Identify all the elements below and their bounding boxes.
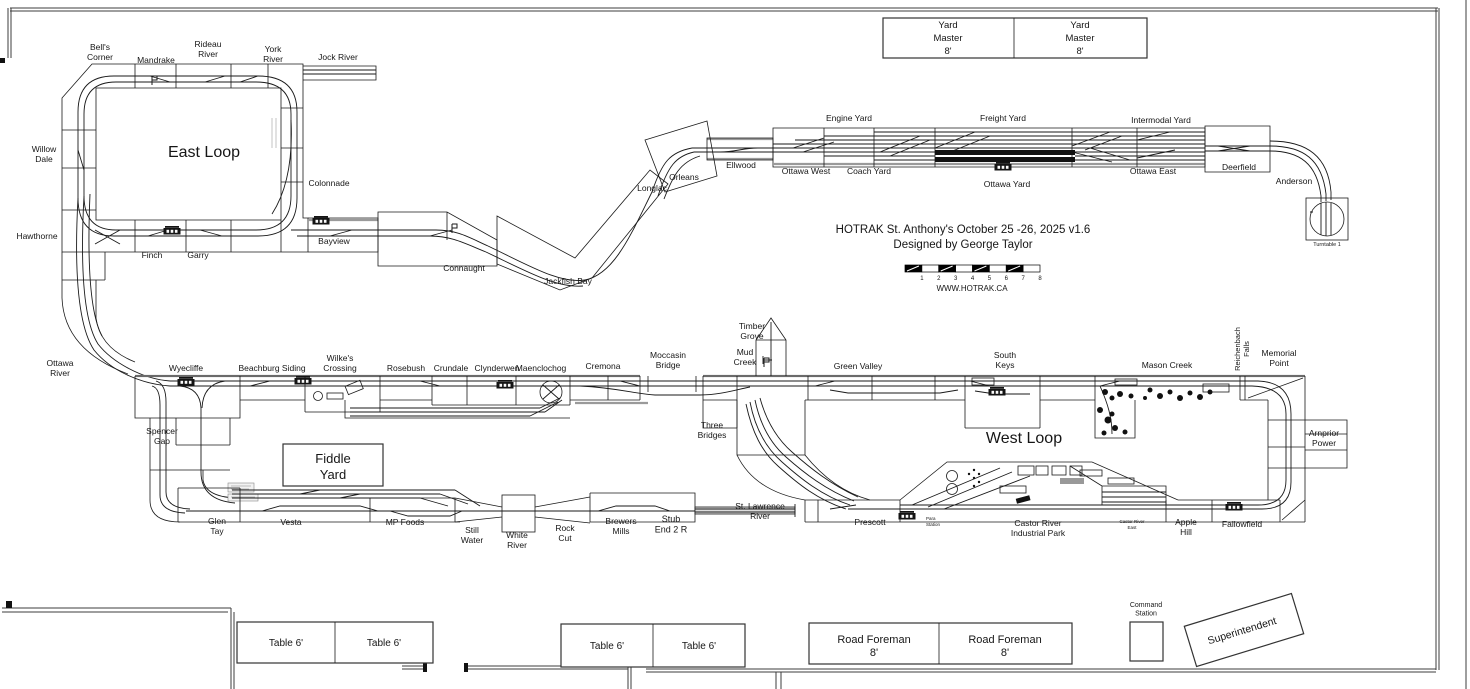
station-label: StillWater [461, 525, 484, 545]
station-label: WhiteRiver [506, 530, 528, 550]
station-label: RockCut [555, 523, 575, 543]
scale-number: 4 [971, 276, 975, 282]
west-loop-area [737, 398, 1305, 522]
yard-master-box [883, 18, 1147, 58]
station-building-icon [989, 387, 1006, 396]
plan-designer: Designed by George Taylor [893, 239, 1032, 251]
station-label: ThreeBridges [698, 420, 727, 440]
station-label: WillowDale [32, 144, 57, 164]
east-loop-label: East Loop [168, 144, 240, 161]
station-building-icon [178, 377, 195, 386]
station-label: ArnpriorPower [1309, 428, 1339, 448]
station-label: Prescott [854, 517, 886, 527]
station-label: SouthKeys [994, 350, 1016, 370]
command-station-box [1130, 622, 1163, 661]
station-label: Connaught [443, 263, 485, 273]
station-label: Turntable 1 [1313, 242, 1341, 248]
station-label: Maenclochog [516, 363, 567, 373]
station-label: Jackfish Bay [544, 276, 592, 286]
station-label: Intermodal Yard [1131, 115, 1191, 125]
track-plan-page: 12345678 Bell'sCornerMandrakeRideauRiver… [0, 0, 1470, 689]
scale-bar-cell [1023, 265, 1040, 272]
station-label: Ottawa West [782, 166, 831, 176]
station-label: Longlac [637, 183, 668, 193]
station-building-icon [995, 162, 1012, 171]
station-label: BrewersMills [605, 516, 636, 536]
station-label: ParaStation [926, 516, 941, 527]
ottawa-yards [773, 126, 1348, 240]
station-label: Ottawa Yard [984, 179, 1031, 189]
scale-number: 2 [937, 276, 941, 282]
station-label: SpencerGap [146, 426, 178, 446]
station-label: Finch [142, 250, 163, 260]
fiddle-yard-label: FiddleYard [315, 451, 350, 482]
scale-number: 5 [988, 276, 992, 282]
scale-bar: 12345678 [905, 265, 1042, 282]
table-label: Table 6' [367, 638, 401, 649]
station-building-icon [899, 511, 916, 520]
station-label: MemorialPoint [1262, 348, 1297, 368]
north-mainline [291, 121, 773, 290]
labels-layer: Bell'sCornerMandrakeRideauRiverYorkRiver… [16, 20, 1340, 659]
station-label: Engine Yard [826, 113, 872, 123]
station-label: AppleHill [1175, 517, 1197, 537]
station-label: ReichenbachFalls [1233, 327, 1251, 371]
station-label: Fallowfield [1222, 519, 1262, 529]
station-label: Hawthorne [16, 231, 57, 241]
west-loop-label: West Loop [986, 430, 1062, 447]
station-building-icon [295, 376, 312, 385]
station-label: Mandrake [137, 55, 175, 65]
station-label: RideauRiver [195, 39, 222, 59]
station-label: Clynderwen [475, 363, 520, 373]
scale-number: 3 [954, 276, 958, 282]
turntable-1 [1306, 198, 1348, 240]
station-label: Orleans [669, 172, 699, 182]
station-label: Ottawa East [1130, 166, 1177, 176]
station-label: Wilke'sCrossing [323, 353, 357, 373]
station-label: Bell'sCorner [87, 42, 113, 62]
plan-title: HOTRAK St. Anthony's October 25 -26, 202… [836, 224, 1091, 236]
station-label: Rosebush [387, 363, 426, 373]
station-label: Bayview [318, 236, 351, 246]
station-label: MP Foods [386, 517, 425, 527]
station-building-icon [313, 216, 330, 225]
station-label: Wyecliffe [169, 363, 204, 373]
scale-bar-cell [922, 265, 939, 272]
scale-number: 6 [1005, 276, 1009, 282]
scale-number: 7 [1021, 276, 1025, 282]
station-label: Castor RiverIndustrial Park [1011, 518, 1066, 538]
station-label: Garry [187, 250, 209, 260]
station-label: TimberGrove [739, 321, 765, 341]
station-label: Crundale [434, 363, 469, 373]
station-label: Castor RiverEast [1119, 519, 1145, 530]
station-label: YorkRiver [263, 44, 283, 64]
table-label: Table 6' [269, 638, 303, 649]
mason-creek-scenery [1097, 379, 1229, 436]
east-loop-trackage [77, 76, 297, 386]
table-label: Table 6' [682, 641, 716, 652]
station-building-icon [164, 226, 181, 235]
station-label: Deerfield [1222, 162, 1256, 172]
station-label: Mason Creek [1142, 360, 1193, 370]
station-label: Beachburg Siding [238, 363, 305, 373]
station-label: MudCreek [734, 347, 757, 367]
station-label: GlenTay [208, 516, 226, 536]
station-building-icon [1226, 502, 1243, 511]
station-label: OttawaRiver [47, 358, 74, 378]
station-building-icon [497, 380, 514, 389]
south-belt [178, 488, 795, 532]
station-label: Colonnade [308, 178, 349, 188]
station-label: Vesta [280, 517, 302, 527]
flag-icon [764, 358, 769, 367]
station-label: Jock River [318, 52, 358, 62]
station-label: Cremona [586, 361, 621, 371]
scale-bar-cell [956, 265, 973, 272]
scale-number: 1 [920, 276, 924, 282]
station-label: StubEnd 2 R [655, 514, 688, 535]
station-label: Ellwood [726, 160, 756, 170]
station-label: Coach Yard [847, 166, 891, 176]
table-label: Table 6' [590, 641, 624, 652]
station-label: MoccasinBridge [650, 350, 686, 370]
plan-website: WWW.HOTRAK.CA [936, 284, 1008, 293]
scale-bar-cell [989, 265, 1006, 272]
station-label: Green Valley [834, 361, 883, 371]
scale-number: 8 [1038, 276, 1042, 282]
track-plan-canvas: 12345678 Bell'sCornerMandrakeRideauRiver… [0, 0, 1470, 689]
station-label: Anderson [1276, 176, 1313, 186]
command-station-label: CommandStation [1130, 602, 1162, 618]
station-label: Freight Yard [980, 113, 1026, 123]
wilkes-crossing-scenery [314, 380, 364, 400]
